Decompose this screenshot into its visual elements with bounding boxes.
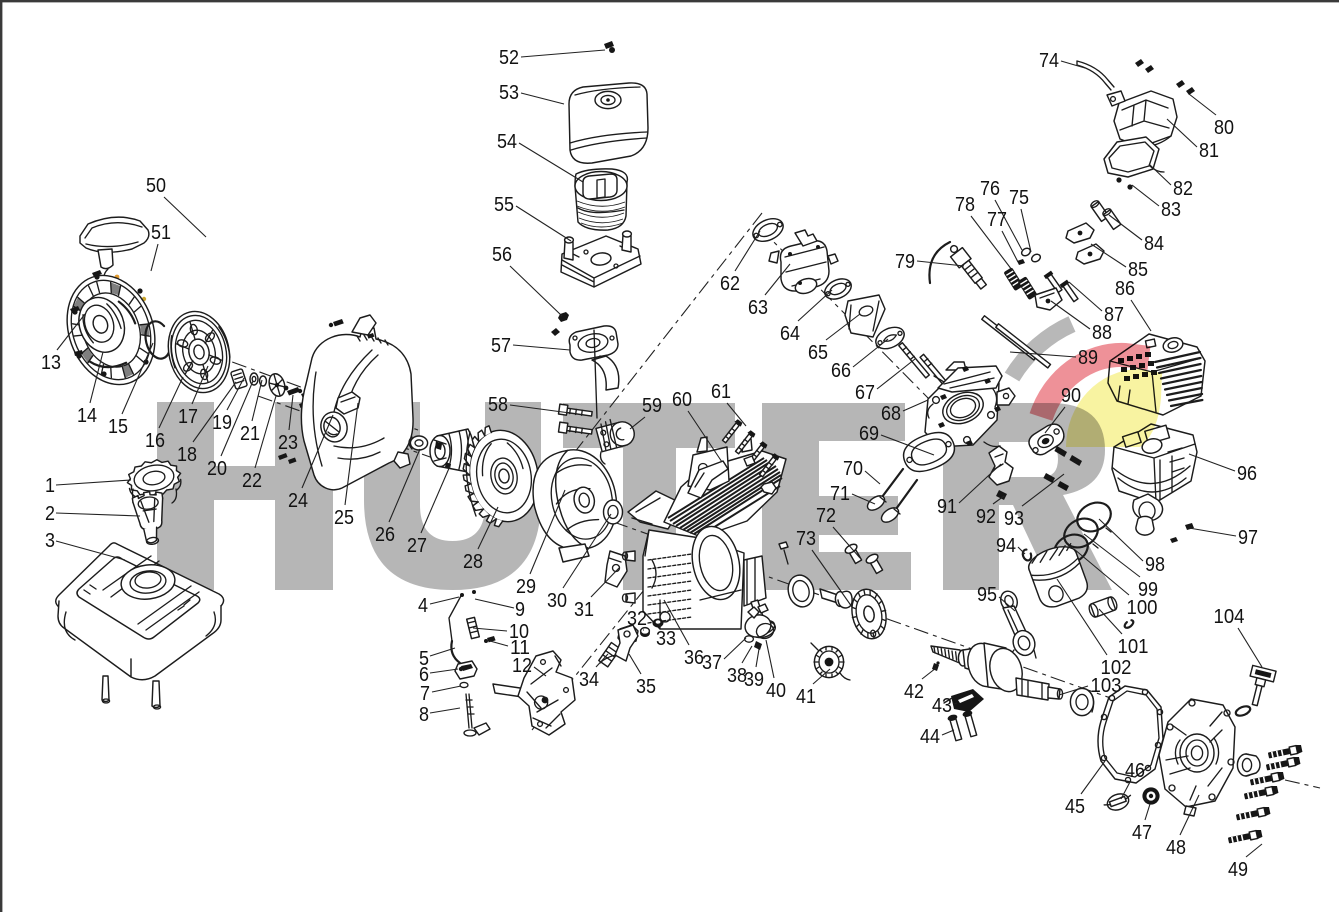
svg-text:72: 72 — [816, 504, 836, 527]
svg-text:28: 28 — [463, 550, 483, 573]
svg-text:17: 17 — [178, 405, 198, 428]
svg-text:4: 4 — [418, 594, 428, 617]
svg-text:94: 94 — [996, 534, 1016, 557]
svg-text:20: 20 — [207, 457, 227, 480]
svg-text:75: 75 — [1009, 186, 1029, 209]
svg-text:90: 90 — [1061, 384, 1081, 407]
svg-text:34: 34 — [579, 668, 599, 691]
svg-text:69: 69 — [859, 422, 879, 445]
svg-text:15: 15 — [108, 415, 128, 438]
svg-text:58: 58 — [488, 393, 508, 416]
svg-text:31: 31 — [574, 598, 594, 621]
svg-text:26: 26 — [375, 523, 395, 546]
svg-text:57: 57 — [491, 334, 511, 357]
svg-text:21: 21 — [240, 422, 260, 445]
svg-text:39: 39 — [744, 668, 764, 691]
svg-text:54: 54 — [497, 130, 517, 153]
svg-text:46: 46 — [1125, 759, 1145, 782]
svg-text:2: 2 — [45, 502, 55, 525]
svg-text:40: 40 — [766, 679, 786, 702]
svg-text:27: 27 — [407, 534, 427, 557]
svg-text:84: 84 — [1144, 232, 1164, 255]
svg-text:52: 52 — [499, 46, 519, 69]
svg-text:22: 22 — [242, 469, 262, 492]
svg-text:66: 66 — [831, 359, 851, 382]
svg-text:103: 103 — [1091, 674, 1122, 697]
svg-text:29: 29 — [516, 575, 536, 598]
svg-text:59: 59 — [642, 394, 662, 417]
svg-text:42: 42 — [904, 680, 924, 703]
svg-text:16: 16 — [145, 429, 165, 452]
svg-text:47: 47 — [1132, 821, 1152, 844]
svg-text:8: 8 — [419, 703, 429, 726]
svg-text:76: 76 — [980, 177, 1000, 200]
svg-text:77: 77 — [987, 208, 1007, 231]
svg-text:100: 100 — [1127, 596, 1158, 619]
svg-text:36: 36 — [684, 646, 704, 669]
svg-text:79: 79 — [895, 250, 915, 273]
svg-text:71: 71 — [830, 482, 850, 505]
svg-text:9: 9 — [515, 598, 525, 621]
svg-text:18: 18 — [177, 443, 197, 466]
svg-text:48: 48 — [1166, 836, 1186, 859]
svg-text:1: 1 — [45, 474, 55, 497]
svg-text:89: 89 — [1078, 346, 1098, 369]
svg-text:80: 80 — [1214, 116, 1234, 139]
svg-text:74: 74 — [1039, 49, 1059, 72]
svg-text:73: 73 — [796, 527, 816, 550]
svg-text:82: 82 — [1173, 177, 1193, 200]
svg-text:53: 53 — [499, 81, 519, 104]
svg-text:98: 98 — [1145, 553, 1165, 576]
svg-text:62: 62 — [720, 272, 740, 295]
svg-text:78: 78 — [955, 193, 975, 216]
svg-text:51: 51 — [151, 221, 171, 244]
svg-text:97: 97 — [1238, 526, 1258, 549]
svg-text:64: 64 — [780, 322, 800, 345]
svg-text:60: 60 — [672, 388, 692, 411]
svg-text:95: 95 — [977, 583, 997, 606]
svg-text:43: 43 — [932, 694, 952, 717]
svg-text:61: 61 — [711, 380, 731, 403]
svg-text:56: 56 — [492, 243, 512, 266]
svg-text:37: 37 — [702, 651, 722, 674]
svg-text:91: 91 — [937, 495, 957, 518]
svg-text:67: 67 — [855, 381, 875, 404]
svg-text:32: 32 — [627, 607, 647, 630]
svg-text:7: 7 — [420, 682, 430, 705]
svg-text:96: 96 — [1237, 462, 1257, 485]
svg-text:83: 83 — [1161, 198, 1181, 221]
svg-text:93: 93 — [1004, 507, 1024, 530]
svg-text:3: 3 — [45, 529, 55, 552]
svg-text:25: 25 — [334, 506, 354, 529]
svg-text:81: 81 — [1199, 139, 1219, 162]
svg-text:44: 44 — [920, 725, 940, 748]
svg-text:55: 55 — [494, 193, 514, 216]
svg-text:14: 14 — [77, 404, 97, 427]
svg-text:92: 92 — [976, 505, 996, 528]
svg-text:24: 24 — [288, 489, 308, 512]
svg-text:88: 88 — [1092, 321, 1112, 344]
svg-text:19: 19 — [212, 411, 232, 434]
svg-text:104: 104 — [1214, 605, 1245, 628]
svg-text:33: 33 — [656, 627, 676, 650]
svg-text:70: 70 — [843, 457, 863, 480]
svg-text:12: 12 — [512, 654, 532, 677]
svg-text:101: 101 — [1118, 635, 1149, 658]
svg-text:23: 23 — [278, 431, 298, 454]
svg-text:63: 63 — [748, 296, 768, 319]
svg-text:30: 30 — [547, 589, 567, 612]
svg-text:35: 35 — [636, 675, 656, 698]
svg-text:45: 45 — [1065, 795, 1085, 818]
svg-text:13: 13 — [41, 351, 61, 374]
svg-text:49: 49 — [1228, 858, 1248, 881]
svg-text:65: 65 — [808, 341, 828, 364]
svg-text:50: 50 — [146, 174, 166, 197]
svg-text:41: 41 — [796, 685, 816, 708]
svg-text:68: 68 — [881, 402, 901, 425]
svg-text:86: 86 — [1115, 277, 1135, 300]
